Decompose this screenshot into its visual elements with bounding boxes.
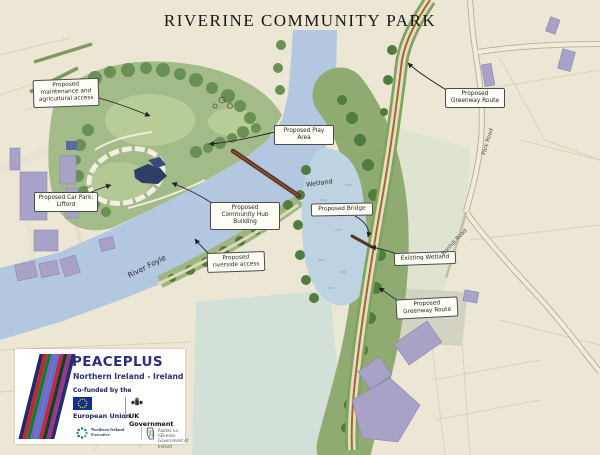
peaceplus-logo xyxy=(18,354,75,439)
callout-greenway-route-bottom: Proposed Greenway Route xyxy=(396,296,459,320)
ni-executive-label: Northern Ireland Executive xyxy=(91,427,137,438)
programme-area: Northern Ireland - Ireland xyxy=(73,372,183,381)
cofunded-label: Co-funded by the xyxy=(73,387,131,394)
govt-ireland-irish: Rialtas na hÉireann xyxy=(158,428,192,438)
govt-ireland-english: Government of Ireland xyxy=(158,438,192,448)
divider xyxy=(125,397,126,419)
divider xyxy=(141,427,142,440)
callout-proposed-bridge: Proposed Bridge xyxy=(311,202,373,216)
callout-riverside-access: Proposed riverside access xyxy=(207,251,266,273)
park-masterplan: RIVERINE COMMUNITY PARK Proposed mainten… xyxy=(0,0,600,455)
peaceplus-wordmark: PEACEPLUS xyxy=(72,354,163,370)
callout-car-park: Proposed Car Park: Lifford xyxy=(34,192,98,212)
uk-government-label: UK Government xyxy=(129,412,185,428)
callout-play-area: Proposed Play Area xyxy=(274,125,334,145)
funding-logo-block: PEACEPLUS Northern Ireland - Ireland Co-… xyxy=(15,349,185,444)
uk-royal-arms-icon xyxy=(131,396,143,408)
harp-icon xyxy=(146,427,155,440)
european-union-label: European Union xyxy=(73,412,130,420)
page-title: RIVERINE COMMUNITY PARK xyxy=(0,11,600,31)
callout-maintenance-access: Proposed maintenance and agricultural ac… xyxy=(33,78,100,108)
callout-community-hub: Proposed Community Hub Building xyxy=(210,202,280,230)
small-building xyxy=(66,141,77,150)
ni-executive-icon xyxy=(75,426,89,440)
eu-flag-icon xyxy=(73,397,92,410)
govt-ireland-label: Rialtas na hÉireann Government of Irelan… xyxy=(158,428,192,449)
callout-greenway-route-top: Proposed Greenway Route xyxy=(445,88,505,108)
